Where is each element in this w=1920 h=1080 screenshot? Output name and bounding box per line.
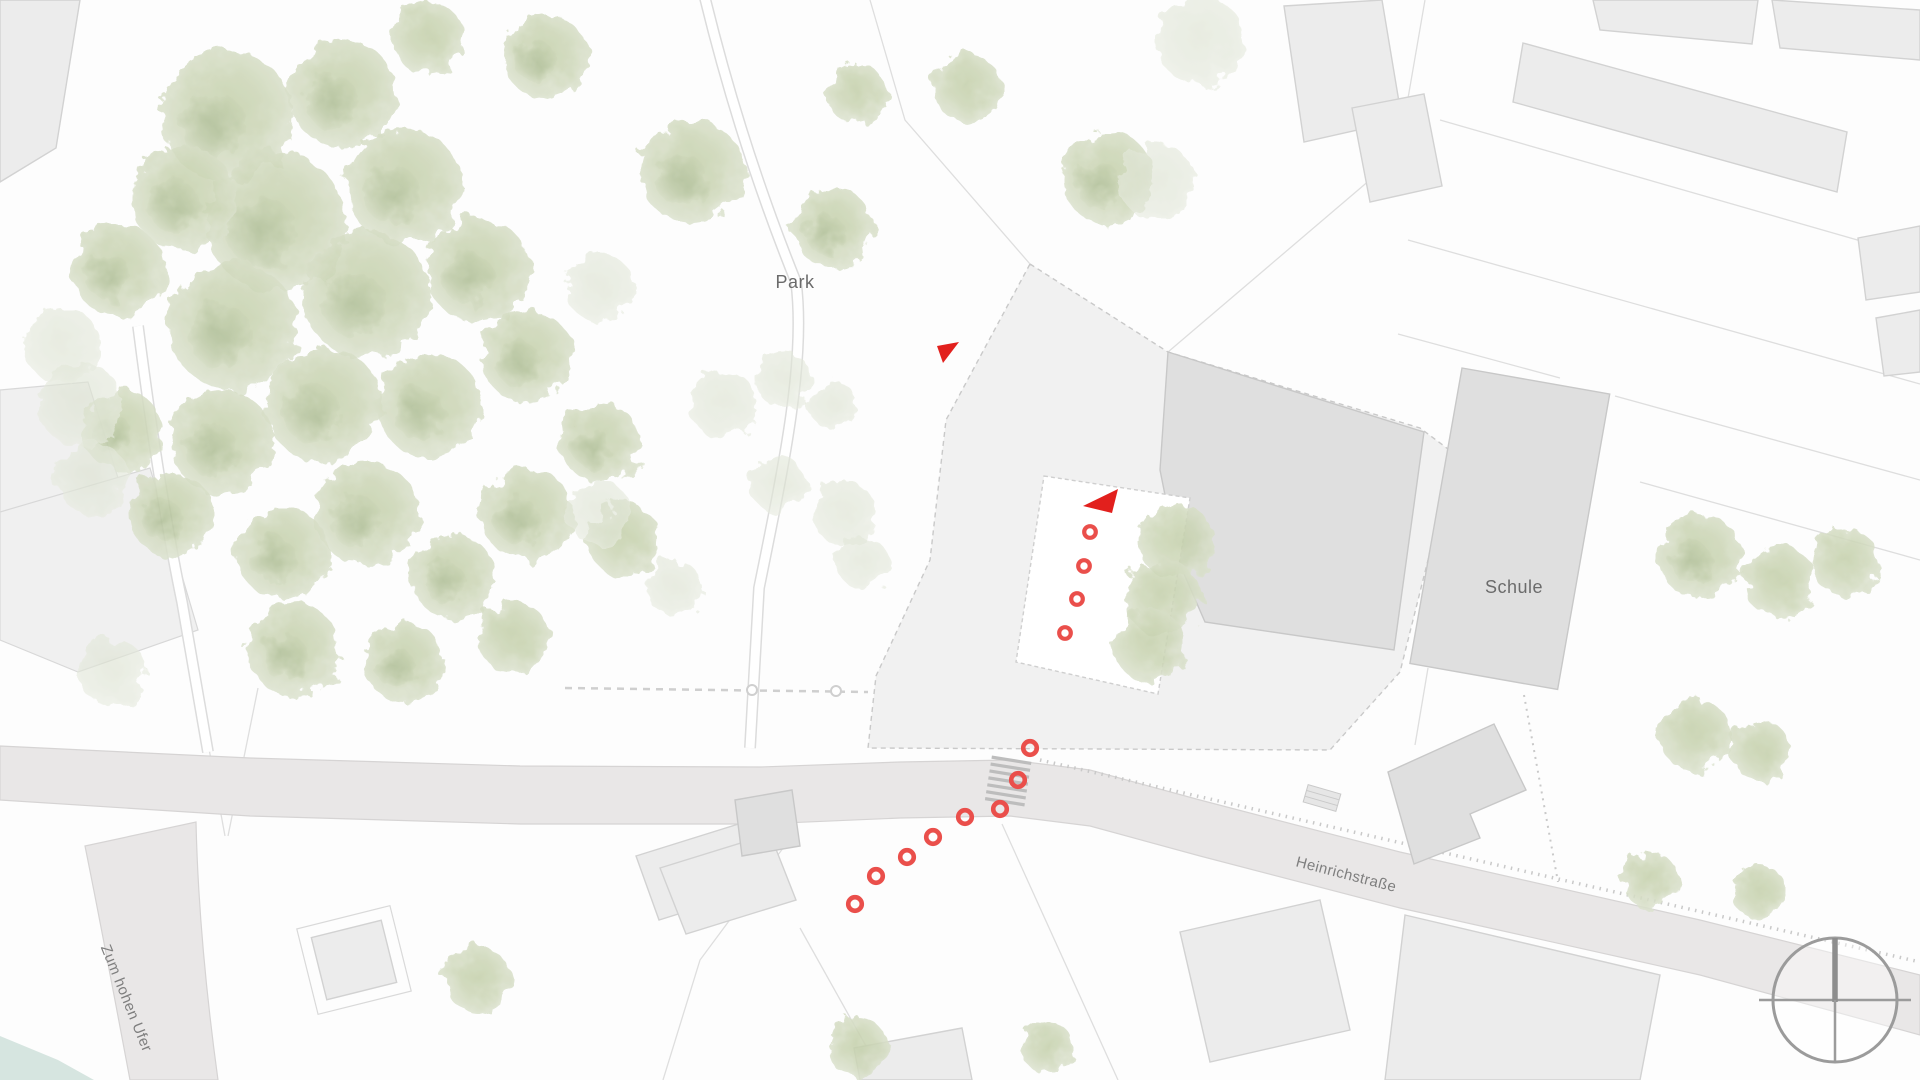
route-triangle: [937, 342, 959, 363]
tree-texture: [188, 304, 252, 368]
tree-canopy: [568, 482, 632, 546]
tree: [1114, 610, 1186, 682]
tree: [1658, 514, 1742, 598]
label-school: Schule: [1485, 577, 1543, 597]
tree: [392, 2, 464, 74]
buildings-top-right: [1284, 0, 1920, 376]
tree-canopy: [392, 2, 464, 74]
tree-pale: [24, 307, 100, 383]
tree-texture: [148, 180, 200, 232]
tree: [481, 468, 573, 560]
site-building: [1160, 352, 1424, 650]
tree: [1659, 699, 1731, 771]
site-plan: Park Schule Heinrichstraße Zum hohen Ufe…: [0, 0, 1920, 1080]
tree-texture: [1671, 541, 1713, 583]
tree: [1811, 528, 1879, 596]
tree-texture: [516, 41, 558, 83]
tree-canopy: [689, 370, 757, 438]
tree-pale: [56, 442, 128, 514]
tree: [364, 622, 444, 702]
tree: [346, 128, 462, 244]
tree-texture: [86, 254, 132, 300]
tree: [503, 14, 587, 98]
tree-texture: [495, 498, 541, 544]
tree-canopy: [1659, 699, 1731, 771]
tree-canopy: [445, 947, 511, 1013]
tree: [481, 310, 573, 402]
tree-canopy: [24, 307, 100, 383]
tree-canopy: [646, 560, 702, 616]
tree-texture: [1076, 162, 1122, 208]
tree-canopy: [1811, 528, 1879, 596]
tree: [640, 120, 744, 224]
tree-canopy: [1732, 722, 1792, 782]
tree-pale: [1119, 144, 1195, 220]
tree: [1744, 546, 1816, 618]
tree: [1622, 852, 1678, 908]
water-patch: [0, 1036, 94, 1080]
tree-pale: [646, 560, 702, 616]
tree: [793, 188, 873, 268]
school-building: [1410, 368, 1610, 689]
tree: [266, 347, 382, 463]
tree: [129, 472, 213, 556]
tree-pale: [750, 456, 806, 512]
tree-texture: [142, 499, 184, 541]
tree-pale: [756, 352, 812, 408]
tree-texture: [495, 340, 541, 386]
tree-pale: [1156, 0, 1244, 84]
tree: [478, 602, 550, 674]
tree-canopy: [1156, 0, 1244, 84]
route-ring: [926, 830, 940, 844]
tree-texture: [805, 214, 845, 254]
tree-texture: [331, 496, 383, 548]
site-plan-canvas: Park Schule Heinrichstraße Zum hohen Ufe…: [0, 0, 1920, 1080]
building-top-left: [0, 0, 80, 182]
tree-canopy: [827, 1017, 887, 1077]
tree-pale: [837, 537, 889, 589]
tree: [303, 231, 431, 359]
label-park: Park: [775, 272, 815, 292]
tree-texture: [656, 154, 708, 206]
tree-pale: [568, 482, 632, 546]
tree-texture: [305, 75, 359, 129]
tree: [411, 534, 495, 618]
tree: [1021, 1021, 1073, 1073]
tree-canopy: [56, 442, 128, 514]
tree: [72, 224, 164, 316]
tree-texture: [227, 198, 297, 268]
tree: [315, 462, 419, 566]
tree: [377, 353, 481, 457]
tree: [560, 402, 640, 482]
tree-texture: [250, 536, 296, 582]
tree-texture: [186, 424, 238, 476]
tree-texture: [376, 648, 416, 688]
tree-canopy: [750, 456, 806, 512]
tree-canopy: [827, 64, 887, 124]
tree-canopy: [478, 602, 550, 674]
tree: [1732, 722, 1792, 782]
tree-canopy: [1622, 852, 1678, 908]
tree-texture: [262, 634, 308, 680]
tree: [248, 604, 340, 696]
tree-canopy: [78, 638, 146, 706]
tree-texture: [363, 166, 421, 224]
tree: [426, 218, 530, 322]
tree-canopy: [933, 54, 1001, 122]
tree-pale: [78, 638, 146, 706]
tree-pale: [566, 254, 634, 322]
tree-canopy: [809, 381, 857, 429]
tree-pale: [813, 482, 877, 546]
tree-pale: [689, 370, 757, 438]
tree: [445, 947, 511, 1013]
tree: [289, 40, 397, 148]
tree-canopy: [1119, 144, 1195, 220]
tree-canopy: [1114, 610, 1186, 682]
tree-canopy: [813, 482, 877, 546]
school-annex: [1388, 724, 1526, 864]
tree: [132, 146, 236, 250]
tree-texture: [322, 273, 386, 337]
tree-texture: [572, 428, 612, 468]
tree-pale: [809, 381, 857, 429]
tree-canopy: [1744, 546, 1816, 618]
route-ring: [869, 869, 883, 883]
tree: [933, 54, 1001, 122]
tree: [1733, 866, 1787, 920]
tree: [236, 506, 328, 598]
tree-canopy: [1021, 1021, 1073, 1073]
route-ring: [848, 897, 862, 911]
fence-line: [565, 685, 868, 696]
tree-texture: [283, 385, 341, 443]
tree-canopy: [566, 254, 634, 322]
tree-canopy: [1733, 866, 1787, 920]
site-stairs: [1303, 785, 1341, 812]
tree: [827, 1017, 887, 1077]
tree-canopy: [837, 537, 889, 589]
route-ring: [900, 850, 914, 864]
tree-texture: [393, 387, 445, 439]
tree-texture: [442, 252, 494, 304]
tree-canopy: [756, 352, 812, 408]
tree-texture: [424, 561, 466, 603]
tree: [827, 64, 887, 124]
